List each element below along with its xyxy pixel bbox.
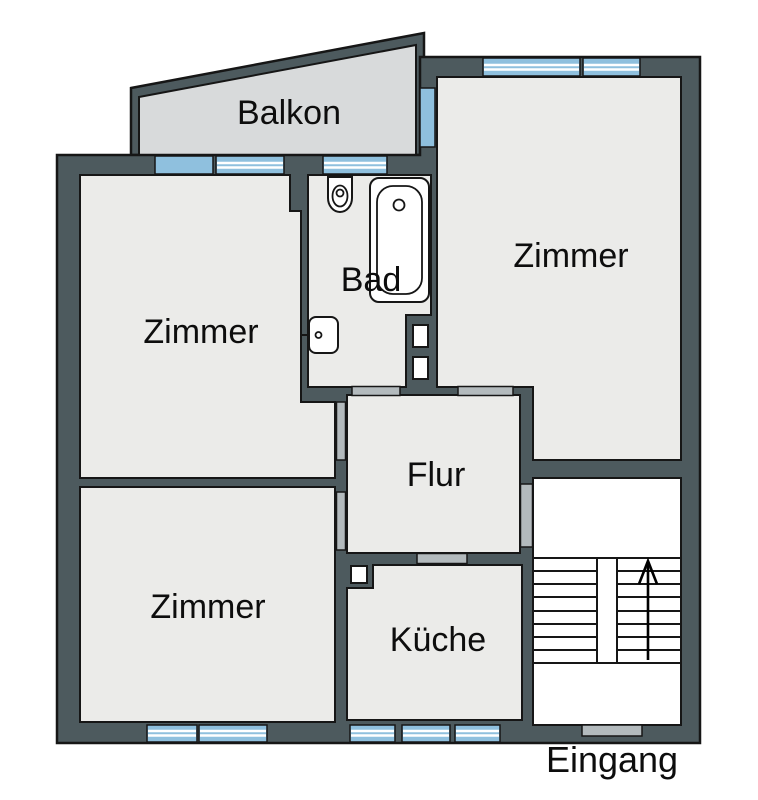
window-zimmer-top-left (216, 156, 284, 174)
label-zimmer-top-left: Zimmer (143, 315, 258, 349)
window-kueche-1 (350, 725, 395, 742)
toilet-icon (328, 177, 352, 212)
shaft-kueche (351, 566, 367, 583)
window-zimmer-bottom-2 (199, 725, 267, 742)
door-zimmer-top-right (458, 387, 513, 396)
door-eingang (582, 725, 642, 736)
door-zimmer-bottom-left (337, 492, 346, 550)
window-zimmer-top-right-2 (583, 58, 640, 76)
label-balkon: Balkon (237, 96, 341, 130)
label-eingang: Eingang (546, 742, 678, 778)
door-apartment-entry (521, 484, 533, 547)
window-zimmer-bottom-1 (147, 725, 197, 742)
stairwell-floor (533, 478, 681, 725)
window-zimmer-top-right-side (420, 88, 435, 147)
window-zimmer-top-right-1 (483, 58, 580, 76)
shaft-bad-upper (413, 325, 428, 347)
window-kueche-2 (402, 725, 450, 742)
label-zimmer-top-right: Zimmer (513, 239, 628, 273)
floor-plan: Balkon Zimmer Bad Zimmer Flur Zimmer Küc… (0, 0, 758, 800)
door-kueche (417, 554, 467, 564)
window-balcony-door (155, 156, 213, 174)
shaft-bad-lower (413, 357, 428, 379)
window-bad (323, 156, 387, 174)
floor-plan-drawing (0, 0, 758, 800)
label-zimmer-bottom-left: Zimmer (150, 590, 265, 624)
label-kueche: Küche (390, 623, 486, 657)
window-kueche-3 (455, 725, 500, 742)
door-bad (352, 387, 400, 396)
door-zimmer-top-left (337, 402, 346, 460)
label-bad: Bad (341, 263, 402, 297)
label-flur: Flur (407, 458, 466, 492)
